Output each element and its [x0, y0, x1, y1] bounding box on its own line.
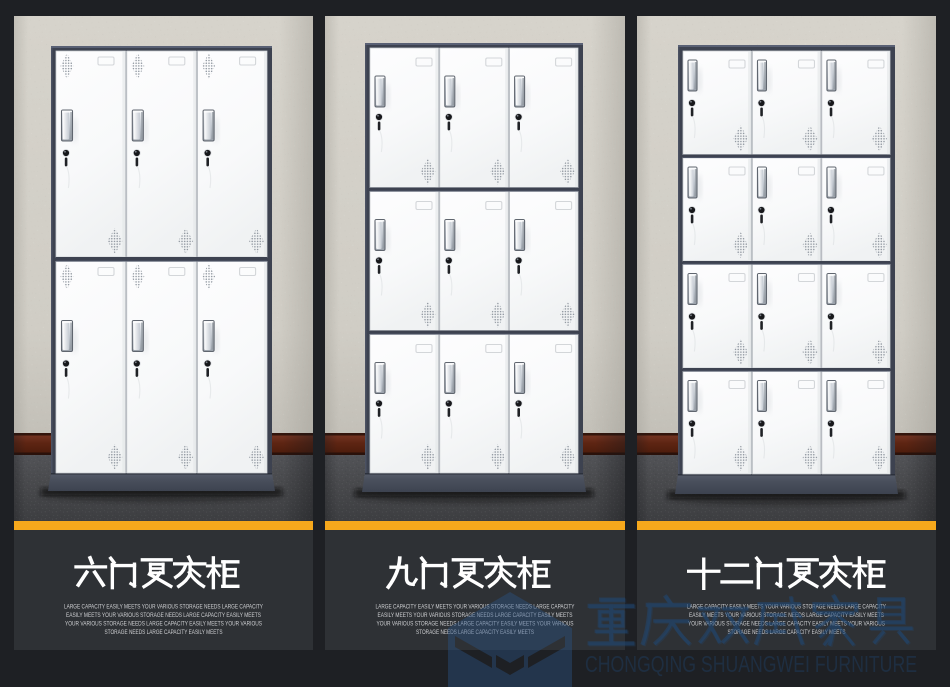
- svg-text:STORAGE NEEDS LARGE CAPACITY E: STORAGE NEEDS LARGE CAPACITY EASILY MEET…: [105, 629, 223, 636]
- svg-text:CHONGQING SHUANGWEI FURNITURE: CHONGQING SHUANGWEI FURNITURE: [585, 651, 917, 677]
- svg-text:EASILY MEETS YOUR VARIOUS STOR: EASILY MEETS YOUR VARIOUS STORAGE NEEDS …: [66, 612, 261, 619]
- svg-text:YOUR VARIOUS STORAGE NEEDS LAR: YOUR VARIOUS STORAGE NEEDS LARGE CAPACIT…: [65, 621, 262, 628]
- svg-text:YOUR VARIOUS STORAGE NEEDS LAR: YOUR VARIOUS STORAGE NEEDS LARGE CAPACIT…: [688, 621, 885, 628]
- svg-text:LARGE CAPACITY EASILY MEETS YO: LARGE CAPACITY EASILY MEETS YOUR VARIOUS…: [376, 604, 575, 611]
- svg-text:LARGE CAPACITY EASILY MEETS YO: LARGE CAPACITY EASILY MEETS YOUR VARIOUS…: [64, 604, 263, 611]
